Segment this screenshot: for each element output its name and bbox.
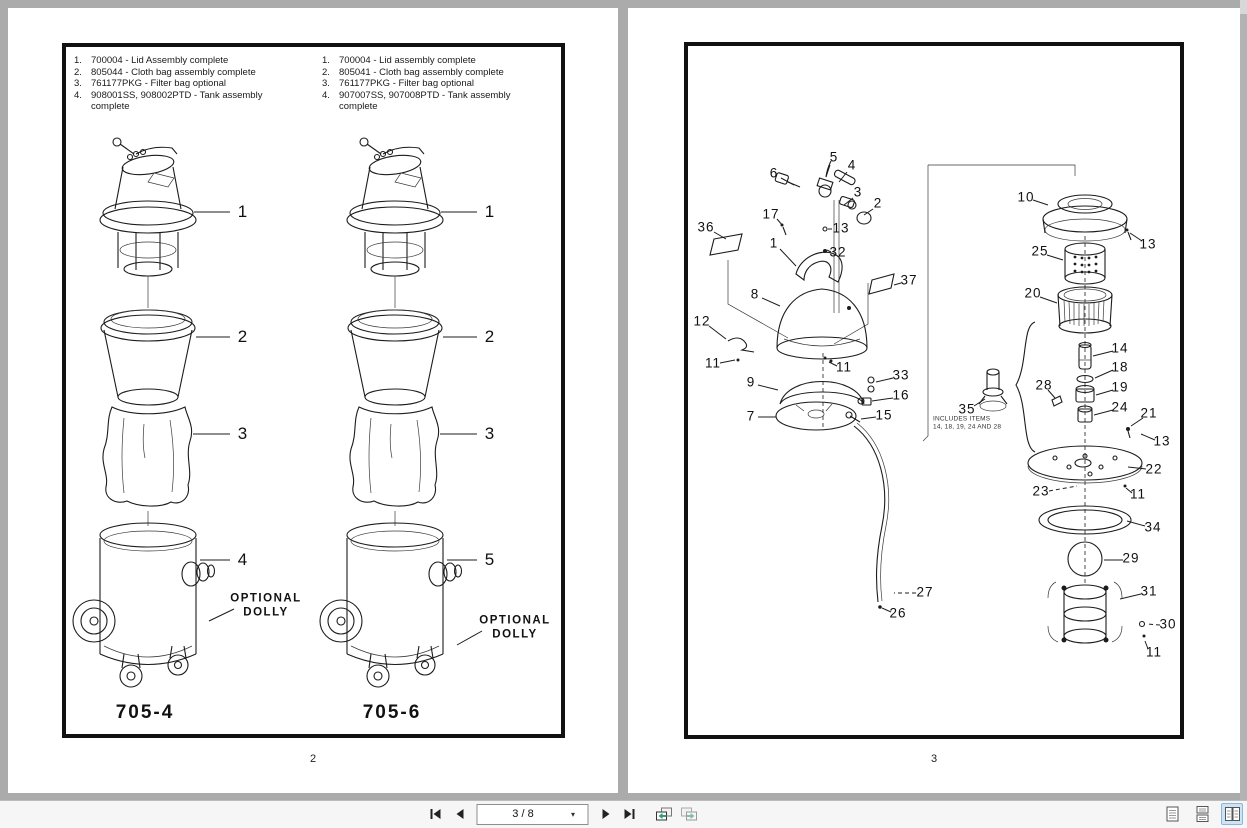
document-page-2: 1.700004 - Lid Assembly complete 2.80504… (8, 8, 618, 793)
part-callout: 13 (1139, 238, 1156, 253)
last-page-button[interactable] (619, 803, 641, 825)
part-callout: 16 (892, 389, 909, 404)
previous-page-icon (453, 808, 465, 820)
model-label-705-4: 705-4 (116, 702, 175, 724)
part-callout: 37 (900, 274, 917, 289)
part-callout: 18 (1111, 361, 1128, 376)
facing-pages-view-icon (1225, 806, 1240, 822)
part-callout: 2 (238, 328, 248, 346)
part-callout: 7 (747, 410, 756, 425)
part-callout: 1 (770, 237, 779, 252)
continuous-view-button[interactable] (1191, 803, 1213, 825)
part-callout: 36 (697, 221, 714, 236)
part-callout: 34 (1144, 521, 1161, 536)
model-label-705-6: 705-6 (363, 702, 422, 724)
part-callout: 11 (1146, 646, 1162, 661)
part-callout: 19 (1111, 381, 1128, 396)
next-page-icon (599, 808, 611, 820)
part-callout: 30 (1159, 618, 1176, 633)
page-dropdown-arrow-icon[interactable]: ▾ (571, 810, 575, 819)
part-callout: 6 (770, 167, 779, 182)
facing-pages-view-button[interactable] (1221, 803, 1243, 825)
next-view-icon (680, 806, 699, 822)
page2-callout-overlay: 1234OPTIONAL DOLLY1235OPTIONAL DOLLY (8, 8, 618, 793)
part-callout: 4 (238, 551, 248, 569)
part-callout: OPTIONAL DOLLY (479, 614, 550, 643)
part-callout: 3 (485, 425, 495, 443)
part-callout: 1 (485, 203, 495, 221)
part-callout: 12 (693, 315, 710, 330)
part-callout: 4 (848, 159, 857, 174)
last-page-icon (623, 808, 637, 820)
page-number-input[interactable] (477, 807, 569, 821)
part-callout: 8 (751, 288, 760, 303)
part-callout: 11 (836, 361, 852, 376)
part-callout: 2 (485, 328, 495, 346)
part-callout: 5 (830, 151, 839, 166)
next-view-button[interactable] (678, 803, 700, 825)
part-callout: 5 (485, 551, 495, 569)
part-callout: INCLUDES ITEMS 14, 18, 19, 24 AND 28 (933, 416, 1001, 433)
part-callout: 11 (1130, 488, 1146, 503)
page3-number: 3 (628, 753, 1240, 765)
single-page-view-button[interactable] (1161, 803, 1183, 825)
part-callout: 31 (1140, 585, 1157, 600)
part-callout: 10 (1017, 191, 1034, 206)
part-callout: 22 (1145, 463, 1162, 478)
part-callout: 26 (889, 607, 906, 622)
part-callout: 2 (874, 197, 883, 212)
page3-callout-overlay: 5463217133613283712119113316715272610132… (628, 8, 1240, 793)
previous-view-button[interactable] (653, 803, 675, 825)
part-callout: OPTIONAL DOLLY (230, 592, 301, 621)
viewer-bottom-toolbar: ▾ (0, 800, 1247, 828)
part-callout: 27 (916, 586, 933, 601)
part-callout: 32 (829, 246, 846, 261)
page-number-box[interactable]: ▾ (476, 804, 588, 825)
part-callout: 3 (238, 425, 248, 443)
first-page-icon (427, 808, 441, 820)
part-callout: 29 (1122, 552, 1139, 567)
part-callout: 1 (238, 203, 248, 221)
page2-number: 2 (8, 753, 618, 765)
part-callout: 3 (854, 186, 863, 201)
part-callout: 14 (1111, 342, 1128, 357)
part-callout: 15 (875, 409, 892, 424)
document-page-3: 5463217133613283712119113316715272610132… (628, 8, 1240, 793)
part-callout: 11 (705, 357, 721, 372)
first-page-button[interactable] (423, 803, 445, 825)
vertical-scrollbar-thumb[interactable] (1240, 0, 1247, 14)
previous-view-icon (655, 806, 674, 822)
part-callout: 24 (1111, 401, 1128, 416)
part-callout: 17 (762, 208, 779, 223)
single-page-view-icon (1166, 806, 1179, 822)
part-callout: 33 (892, 369, 909, 384)
part-callout: 20 (1024, 287, 1041, 302)
part-callout: 13 (1153, 435, 1170, 450)
part-callout: 25 (1031, 245, 1048, 260)
vertical-scrollbar[interactable] (1240, 0, 1247, 800)
continuous-view-icon (1196, 806, 1209, 822)
part-callout: 28 (1035, 379, 1052, 394)
part-callout: 21 (1140, 407, 1157, 422)
part-callout: 23 (1032, 485, 1049, 500)
next-page-button[interactable] (594, 803, 616, 825)
part-callout: 13 (832, 222, 849, 237)
pdf-viewer-canvas: 1.700004 - Lid Assembly complete 2.80504… (0, 0, 1247, 800)
prev-page-button[interactable] (448, 803, 470, 825)
part-callout: 9 (747, 376, 756, 391)
